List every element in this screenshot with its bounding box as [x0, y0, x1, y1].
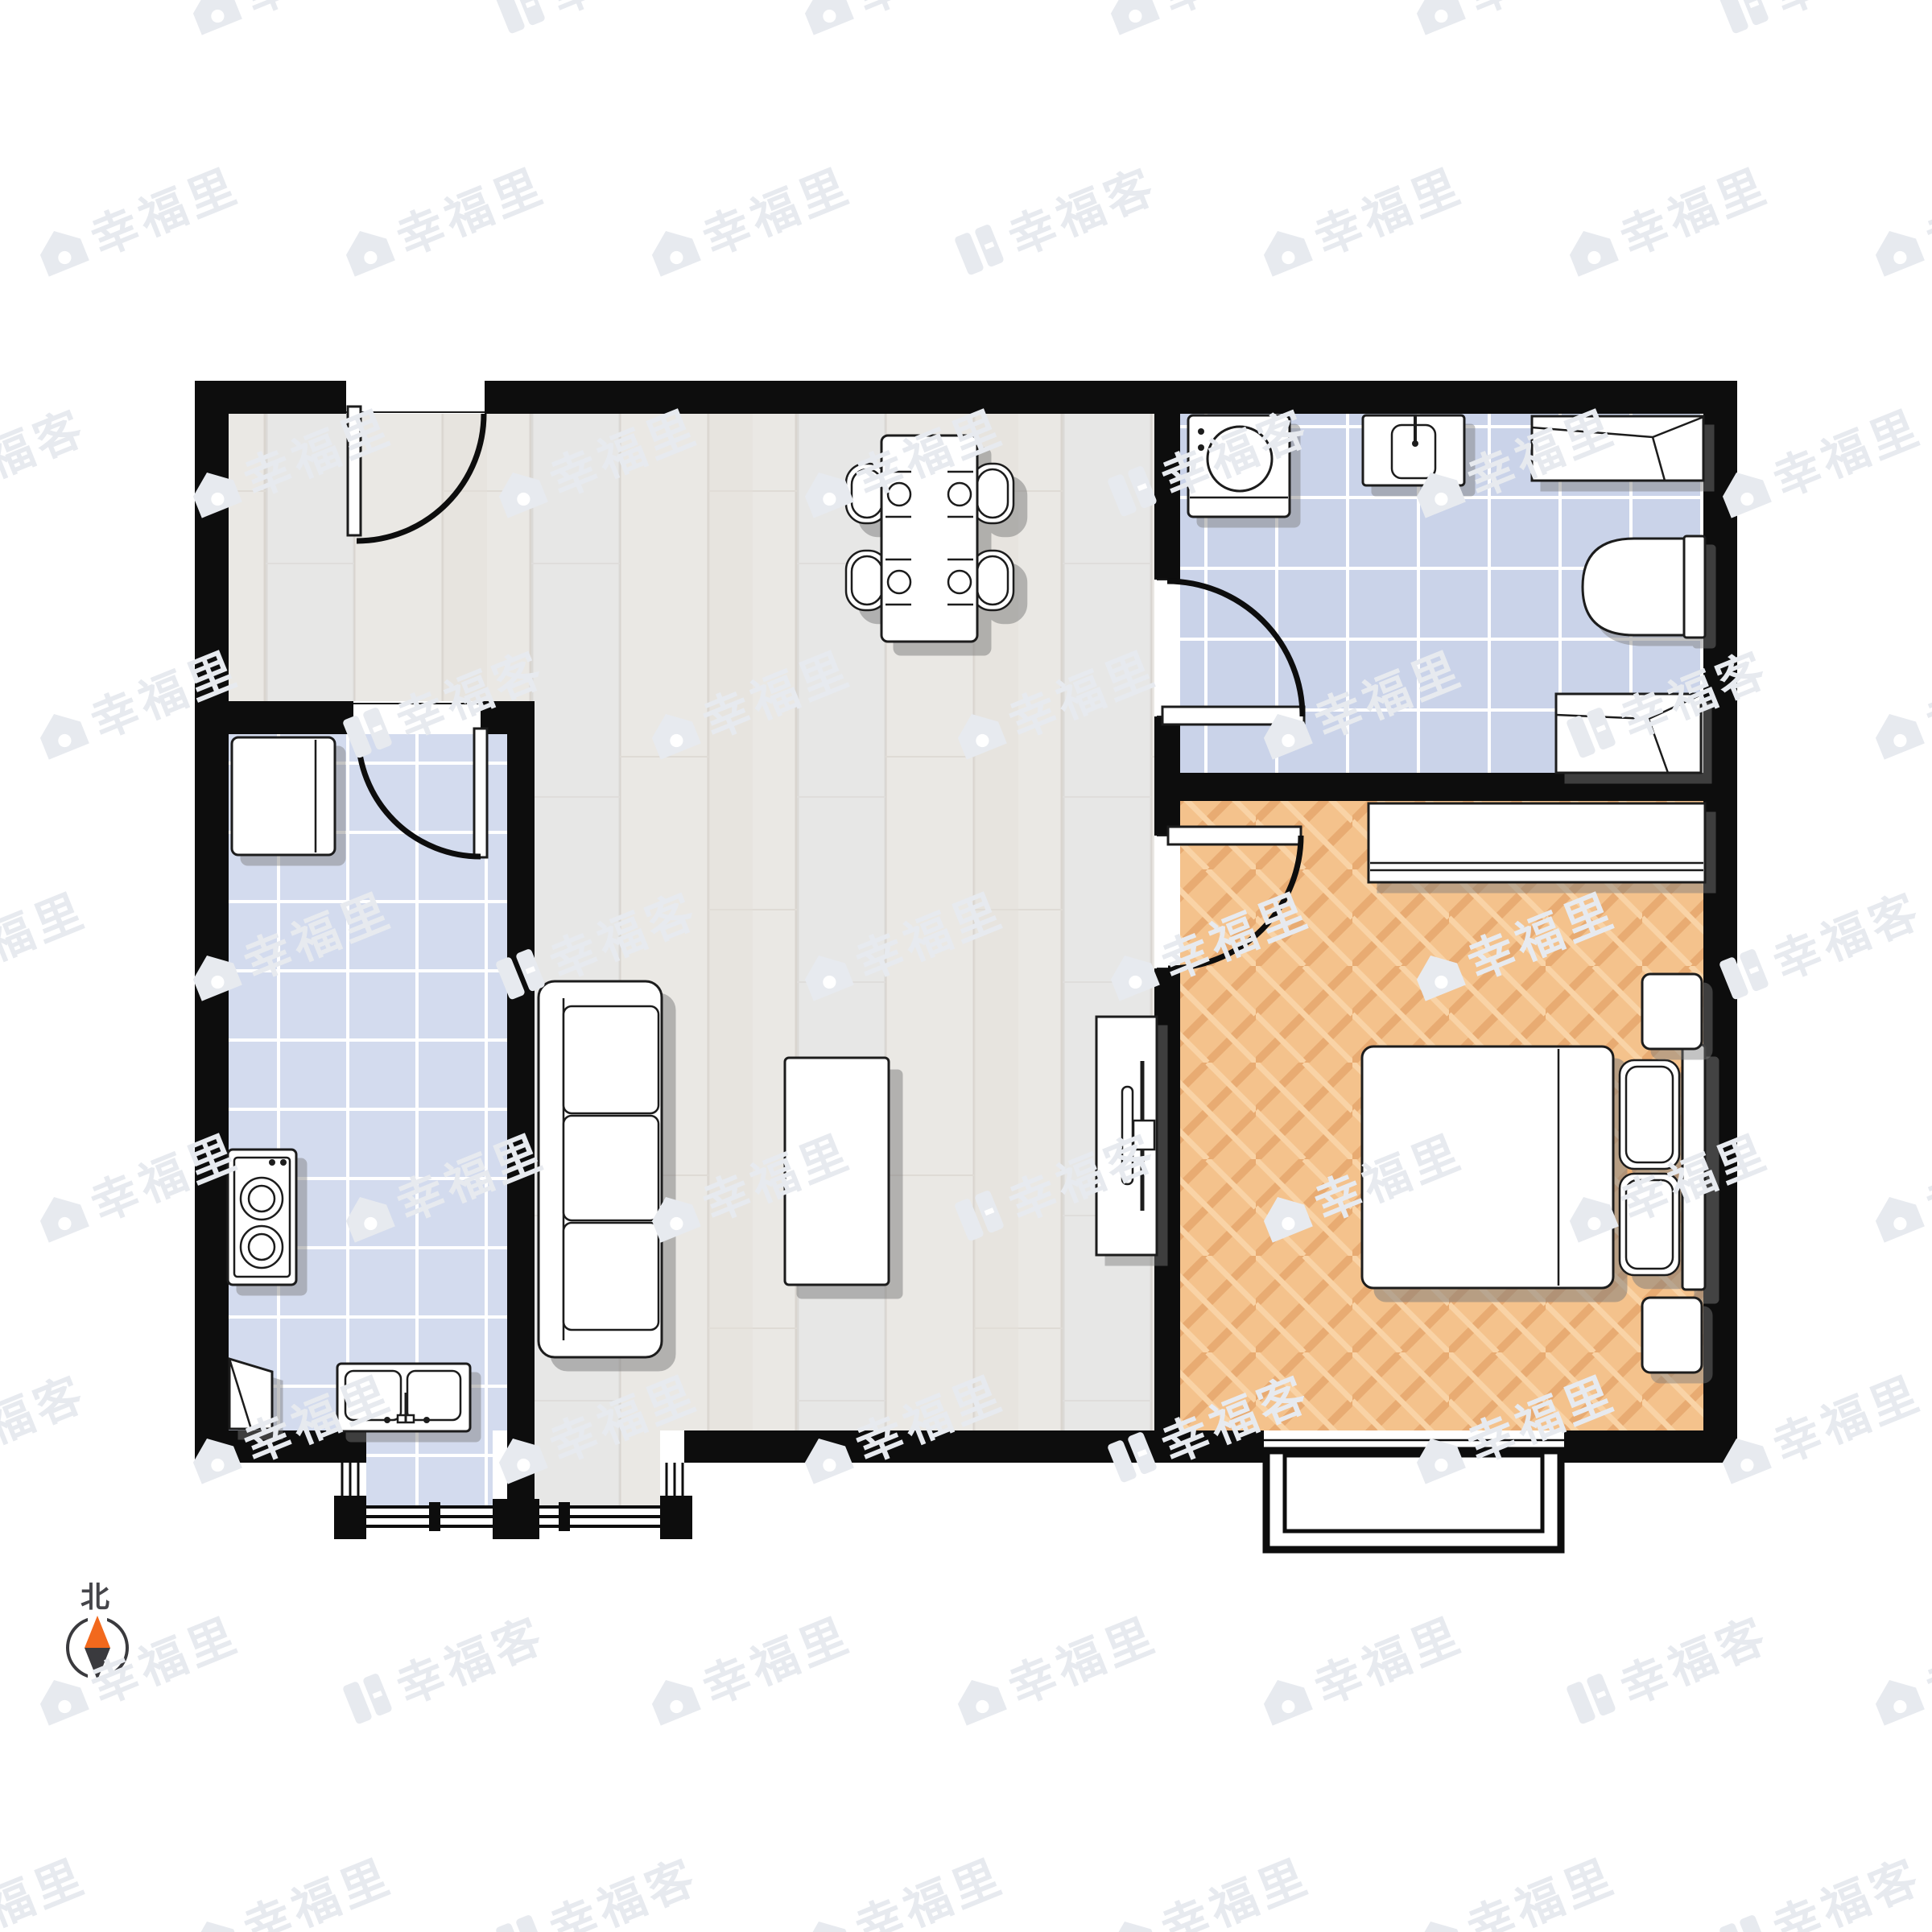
wall-divider-lower: [1154, 968, 1180, 1430]
wall-left: [195, 381, 229, 1463]
sink-basin-left: [345, 1371, 401, 1420]
bay-window-bedroom: [1264, 1439, 1564, 1550]
tv-unit: [1096, 1017, 1157, 1255]
bedroom-door-panel: [1168, 827, 1301, 844]
wardrobe: [1368, 803, 1705, 882]
bed-mattress: [1362, 1046, 1613, 1288]
nightstand-upper: [1642, 974, 1702, 1049]
entry-door-panel: [348, 407, 361, 535]
double-bed: [1362, 1045, 1705, 1290]
bay-glazing-living: [539, 1507, 660, 1526]
bay-mullion-2: [559, 1502, 570, 1531]
compass: 北: [68, 1580, 127, 1684]
sofa-cushion: [563, 1223, 658, 1330]
wall-bathroom-bottom: [1154, 773, 1703, 801]
toilet-tank: [1684, 536, 1705, 638]
dining-table: [881, 436, 977, 642]
kitchen-door-panel: [474, 729, 487, 857]
dining-plate: [888, 483, 910, 506]
kitchen-door-opening: [353, 701, 481, 734]
dining-plate: [948, 483, 971, 506]
dining-plate: [888, 571, 910, 593]
tv-mount: [1133, 1121, 1154, 1150]
sink-basin-right: [407, 1371, 460, 1420]
bay-pillar-center: [493, 1499, 539, 1539]
wall-bottom-left: [195, 1430, 366, 1463]
coffee-table: [785, 1058, 889, 1285]
refrigerator: [232, 737, 335, 855]
toilet-bowl: [1583, 539, 1684, 635]
kitchen-bay-floor-extension: [366, 1430, 493, 1509]
bathroom-door-panel: [1162, 707, 1304, 724]
bay-pillar-left: [334, 1496, 366, 1539]
bed-pillow: [1620, 1174, 1679, 1275]
washing-machine: [1188, 415, 1290, 517]
sofa-3-seat: [539, 981, 662, 1357]
double-kitchen-sink: [337, 1364, 470, 1431]
floorplan-canvas: 北 幸福里幸福里幸福客幸福里幸福里幸福里幸福客幸福里幸福里幸福里幸福里幸福客幸福…: [0, 0, 1932, 1932]
entry-door-opening: [346, 381, 485, 414]
bed-headboard: [1682, 1045, 1705, 1290]
burner: [241, 1178, 283, 1220]
bed-pillow: [1620, 1060, 1679, 1169]
wall-divider-upper: [1154, 414, 1180, 580]
burner: [241, 1226, 283, 1268]
washer-drum: [1207, 427, 1272, 491]
sofa-cushion: [563, 1006, 658, 1113]
sofa-cushion: [563, 1116, 658, 1220]
wall-kitchen-top-left: [229, 701, 353, 734]
bay-pillar-right: [660, 1496, 692, 1539]
bay-mullion-1: [429, 1502, 440, 1531]
wash-basin: [1363, 415, 1464, 485]
shower-cabinet: [1532, 416, 1703, 481]
nightstand-lower: [1642, 1298, 1702, 1373]
bathroom-door-opening: [1154, 580, 1180, 716]
toilet: [1583, 536, 1705, 638]
bedroom-bay-outer-frame: [1266, 1451, 1561, 1550]
living-bay-floor-extension: [535, 1430, 660, 1509]
floorplan-drawing: 北: [0, 0, 1932, 1932]
wall-bottom-middle: [684, 1430, 1264, 1463]
cooktop-2-burner: [228, 1150, 296, 1285]
corner-shelf: [229, 1359, 272, 1429]
tv-soundbar: [1122, 1087, 1133, 1184]
wall-kitchen-right: [507, 701, 535, 1501]
wall-bottom-right: [1564, 1430, 1737, 1463]
compass-north-label: 北: [80, 1580, 109, 1613]
dining-plate: [948, 571, 971, 593]
bath-cabinet: [1556, 694, 1701, 773]
bedroom-door-opening: [1154, 836, 1180, 968]
wall-right: [1703, 381, 1737, 1463]
